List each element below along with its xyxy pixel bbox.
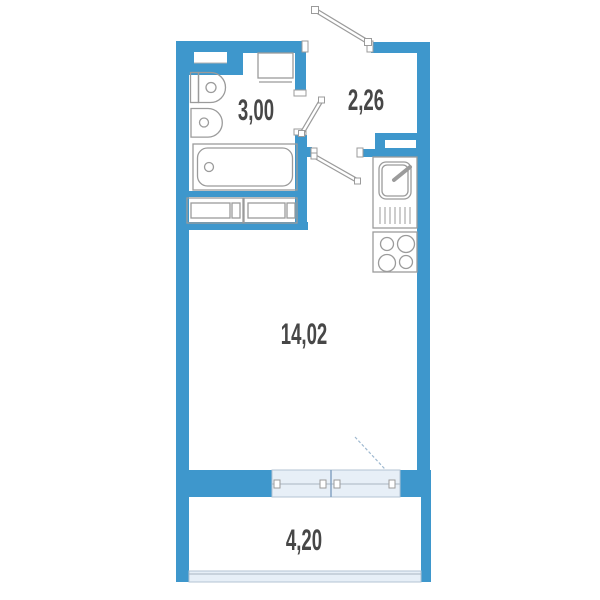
balcony-glazing	[189, 571, 421, 582]
room-label-hallway: 2,26	[348, 84, 384, 118]
bathroom-leaf-cap-end	[319, 97, 325, 103]
stove-burner-bl	[379, 255, 396, 272]
entrance-door-leaf	[314, 8, 369, 43]
bathtub-inner	[198, 148, 293, 186]
bathtub-outer	[193, 144, 297, 190]
walls	[176, 41, 431, 582]
toilet-icon	[191, 73, 226, 103]
wall-window-left	[176, 470, 272, 497]
stove-burner-tr	[398, 236, 415, 253]
toilet-bowl	[199, 73, 226, 103]
window-tick-4	[389, 480, 395, 488]
entrance-leaf-cap-top	[312, 7, 319, 14]
washbasin-icon	[191, 109, 222, 138]
kitchen-jamb-right	[357, 148, 363, 157]
niche-opening	[194, 52, 227, 63]
wardrobe-panel-2	[287, 203, 295, 218]
wall-left	[176, 41, 189, 582]
wall-niche	[194, 52, 227, 63]
room-label-balcony: 4,20	[286, 524, 322, 558]
washbasin-bowl	[191, 109, 222, 138]
kitchen-leaf-cap-end	[355, 178, 361, 184]
room-label-bathroom: 3,00	[238, 94, 274, 128]
wardrobe-module-1	[187, 198, 243, 223]
ventilation-shaft	[385, 140, 416, 148]
wall-bathroom-bottom	[189, 191, 295, 197]
wardrobe-door-1	[191, 203, 230, 218]
entrance-jamb-left	[302, 41, 308, 52]
wardrobe-door-2	[248, 203, 285, 218]
bathroom-leaf-cap-hinge	[299, 131, 305, 137]
kitchen-door-leaf	[313, 154, 358, 182]
toilet-drain	[206, 83, 216, 93]
stove-burner-tl	[381, 238, 394, 251]
kitchen-drainer-lines	[380, 207, 410, 224]
wall-top-bathroom	[176, 41, 303, 53]
window-tick-2	[320, 480, 326, 488]
wall-right	[417, 42, 430, 470]
wardrobe-module-2	[244, 198, 297, 223]
window-tick-3	[334, 480, 340, 488]
floor-plan-canvas: 3,00 2,26 14,02 4,20	[0, 0, 600, 600]
washing-machine-icon	[258, 53, 293, 82]
floor-plan: 3,00 2,26 14,02 4,20	[0, 0, 600, 600]
kitchen-sink-icon	[373, 157, 417, 228]
living-room-window	[272, 470, 400, 497]
washbasin-drain	[200, 118, 209, 127]
shaft-opening	[385, 140, 416, 148]
bathroom-door	[294, 90, 325, 137]
bathtub-icon	[193, 144, 297, 190]
bathtub-drain	[205, 163, 214, 172]
bathroom-jamb-top	[294, 90, 306, 96]
kitchen-door	[311, 148, 363, 184]
kitchen-leaf-cap-hinge	[311, 153, 317, 159]
wall-balcony-right	[421, 497, 431, 582]
wall-shaft-bar	[363, 149, 377, 157]
entrance-door	[302, 7, 373, 53]
room-label-living-room: 14,02	[281, 318, 328, 352]
stove-burner-br	[400, 256, 413, 269]
kitchen-stove-icon	[373, 232, 417, 272]
built-in-wardrobe	[187, 198, 297, 223]
wall-window-pier-right	[400, 470, 431, 497]
entrance-leaf-cap-bottom	[365, 39, 372, 46]
wardrobe-panel-1	[232, 203, 240, 218]
bathroom-door-leaf	[300, 99, 323, 134]
washing-machine-body	[258, 53, 293, 78]
toilet-tank	[191, 73, 199, 103]
window-tick-1	[274, 480, 280, 488]
balcony-glazing-band	[189, 571, 421, 582]
